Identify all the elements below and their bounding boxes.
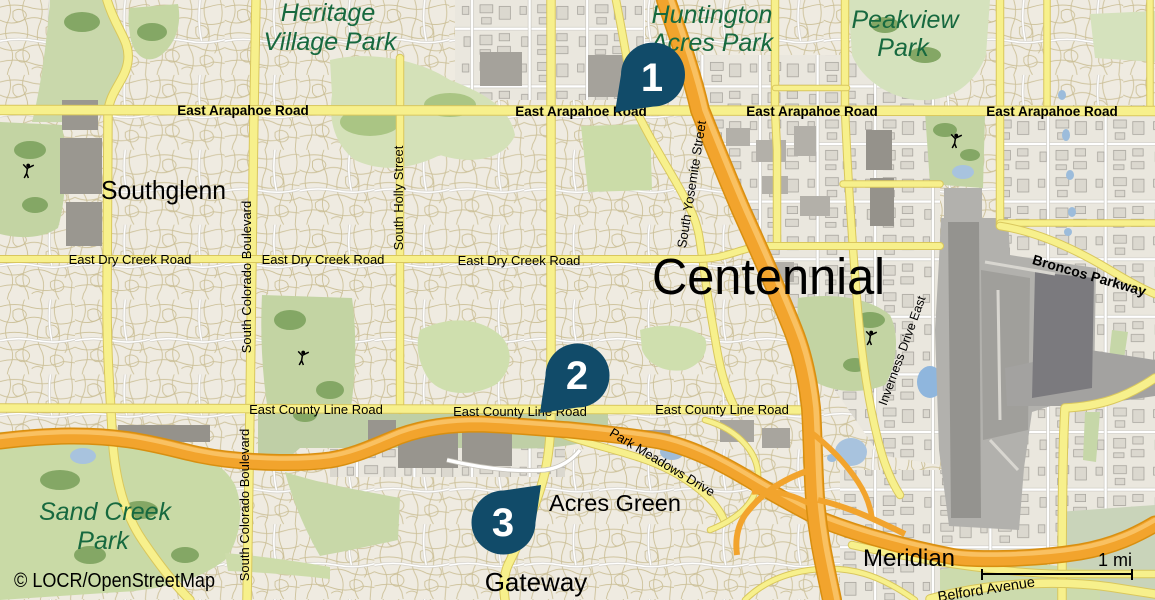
svg-text:1: 1 [641,56,663,100]
svg-text:3: 3 [492,501,514,545]
svg-text:East County Line Road: East County Line Road [655,402,789,417]
svg-text:East Arapahoe Road: East Arapahoe Road [746,104,878,119]
svg-text:Peakview: Peakview [852,6,961,34]
svg-text:East Arapahoe Road: East Arapahoe Road [986,104,1118,119]
svg-text:South Colorado Boulevard: South Colorado Boulevard [237,429,252,582]
svg-text:Acres Green: Acres Green [549,490,681,516]
svg-text:Park: Park [77,527,130,555]
svg-text:Centennial: Centennial [652,248,885,305]
svg-text:East Arapahoe Road: East Arapahoe Road [177,103,309,118]
svg-text:Huntington: Huntington [652,1,773,29]
svg-text:East Dry Creek Road: East Dry Creek Road [458,253,581,268]
svg-text:Meridian: Meridian [863,545,955,572]
svg-text:Sand Creek: Sand Creek [39,498,173,526]
svg-text:2: 2 [566,354,588,398]
svg-text:Heritage: Heritage [281,0,376,27]
svg-text:Park: Park [877,34,930,62]
svg-text:© LOCR/OpenStreetMap: © LOCR/OpenStreetMap [14,570,215,592]
svg-text:Gateway: Gateway [485,567,588,597]
svg-text:South Colorado Boulevard: South Colorado Boulevard [239,201,254,354]
svg-text:East Dry Creek Road: East Dry Creek Road [69,252,192,267]
svg-text:Southglenn: Southglenn [101,175,226,205]
svg-text:1 mi: 1 mi [1098,550,1132,570]
svg-text:East Dry Creek Road: East Dry Creek Road [262,252,385,267]
svg-text:South Holly Street: South Holly Street [391,145,406,250]
svg-text:Village Park: Village Park [264,28,398,56]
svg-text:East County Line Road: East County Line Road [249,402,383,417]
